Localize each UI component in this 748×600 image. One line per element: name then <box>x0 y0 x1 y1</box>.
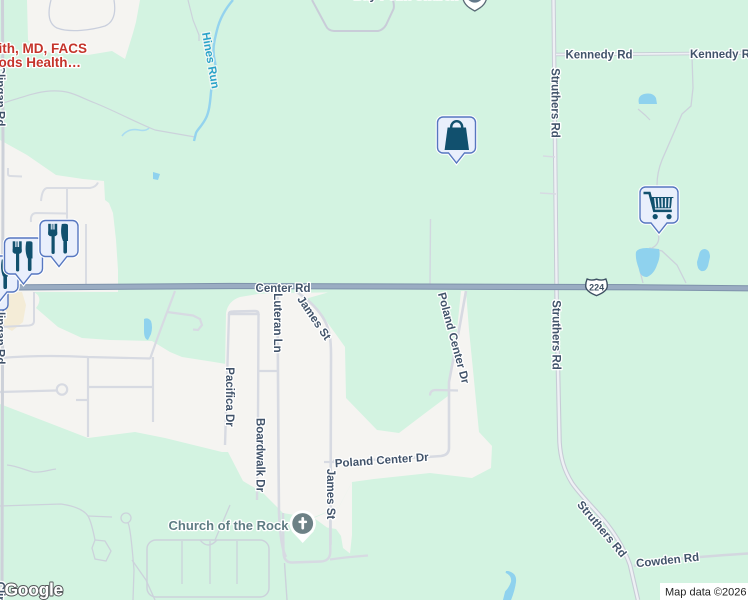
svg-text:Church of the Rock: Church of the Rock <box>169 518 290 533</box>
svg-text:ith, MD, FACS: ith, MD, FACS <box>0 41 87 56</box>
svg-text:Map data ©2026: Map data ©2026 <box>665 587 747 599</box>
svg-text:Pacifica Dr: Pacifica Dr <box>223 367 235 427</box>
svg-text:James St: James St <box>324 469 336 520</box>
svg-text:Clingan Rd: Clingan Rd <box>0 66 6 127</box>
svg-text:Clingan Rd: Clingan Rd <box>0 304 6 365</box>
svg-text:Struthers Rd: Struthers Rd <box>550 300 562 370</box>
svg-text:Boardwalk Dr: Boardwalk Dr <box>254 418 266 493</box>
svg-text:Kennedy Rd: Kennedy Rd <box>690 49 748 61</box>
svg-text:Bay Point Church: Bay Point Church <box>354 0 459 3</box>
svg-text:Luteran Ln: Luteran Ln <box>271 293 283 352</box>
svg-text:Kennedy Rd: Kennedy Rd <box>565 50 632 62</box>
svg-text:224: 224 <box>589 282 604 292</box>
svg-text:Struthers Rd: Struthers Rd <box>549 68 561 138</box>
svg-text:ods Health…: ods Health… <box>0 55 81 70</box>
svg-text:Google: Google <box>5 580 64 600</box>
